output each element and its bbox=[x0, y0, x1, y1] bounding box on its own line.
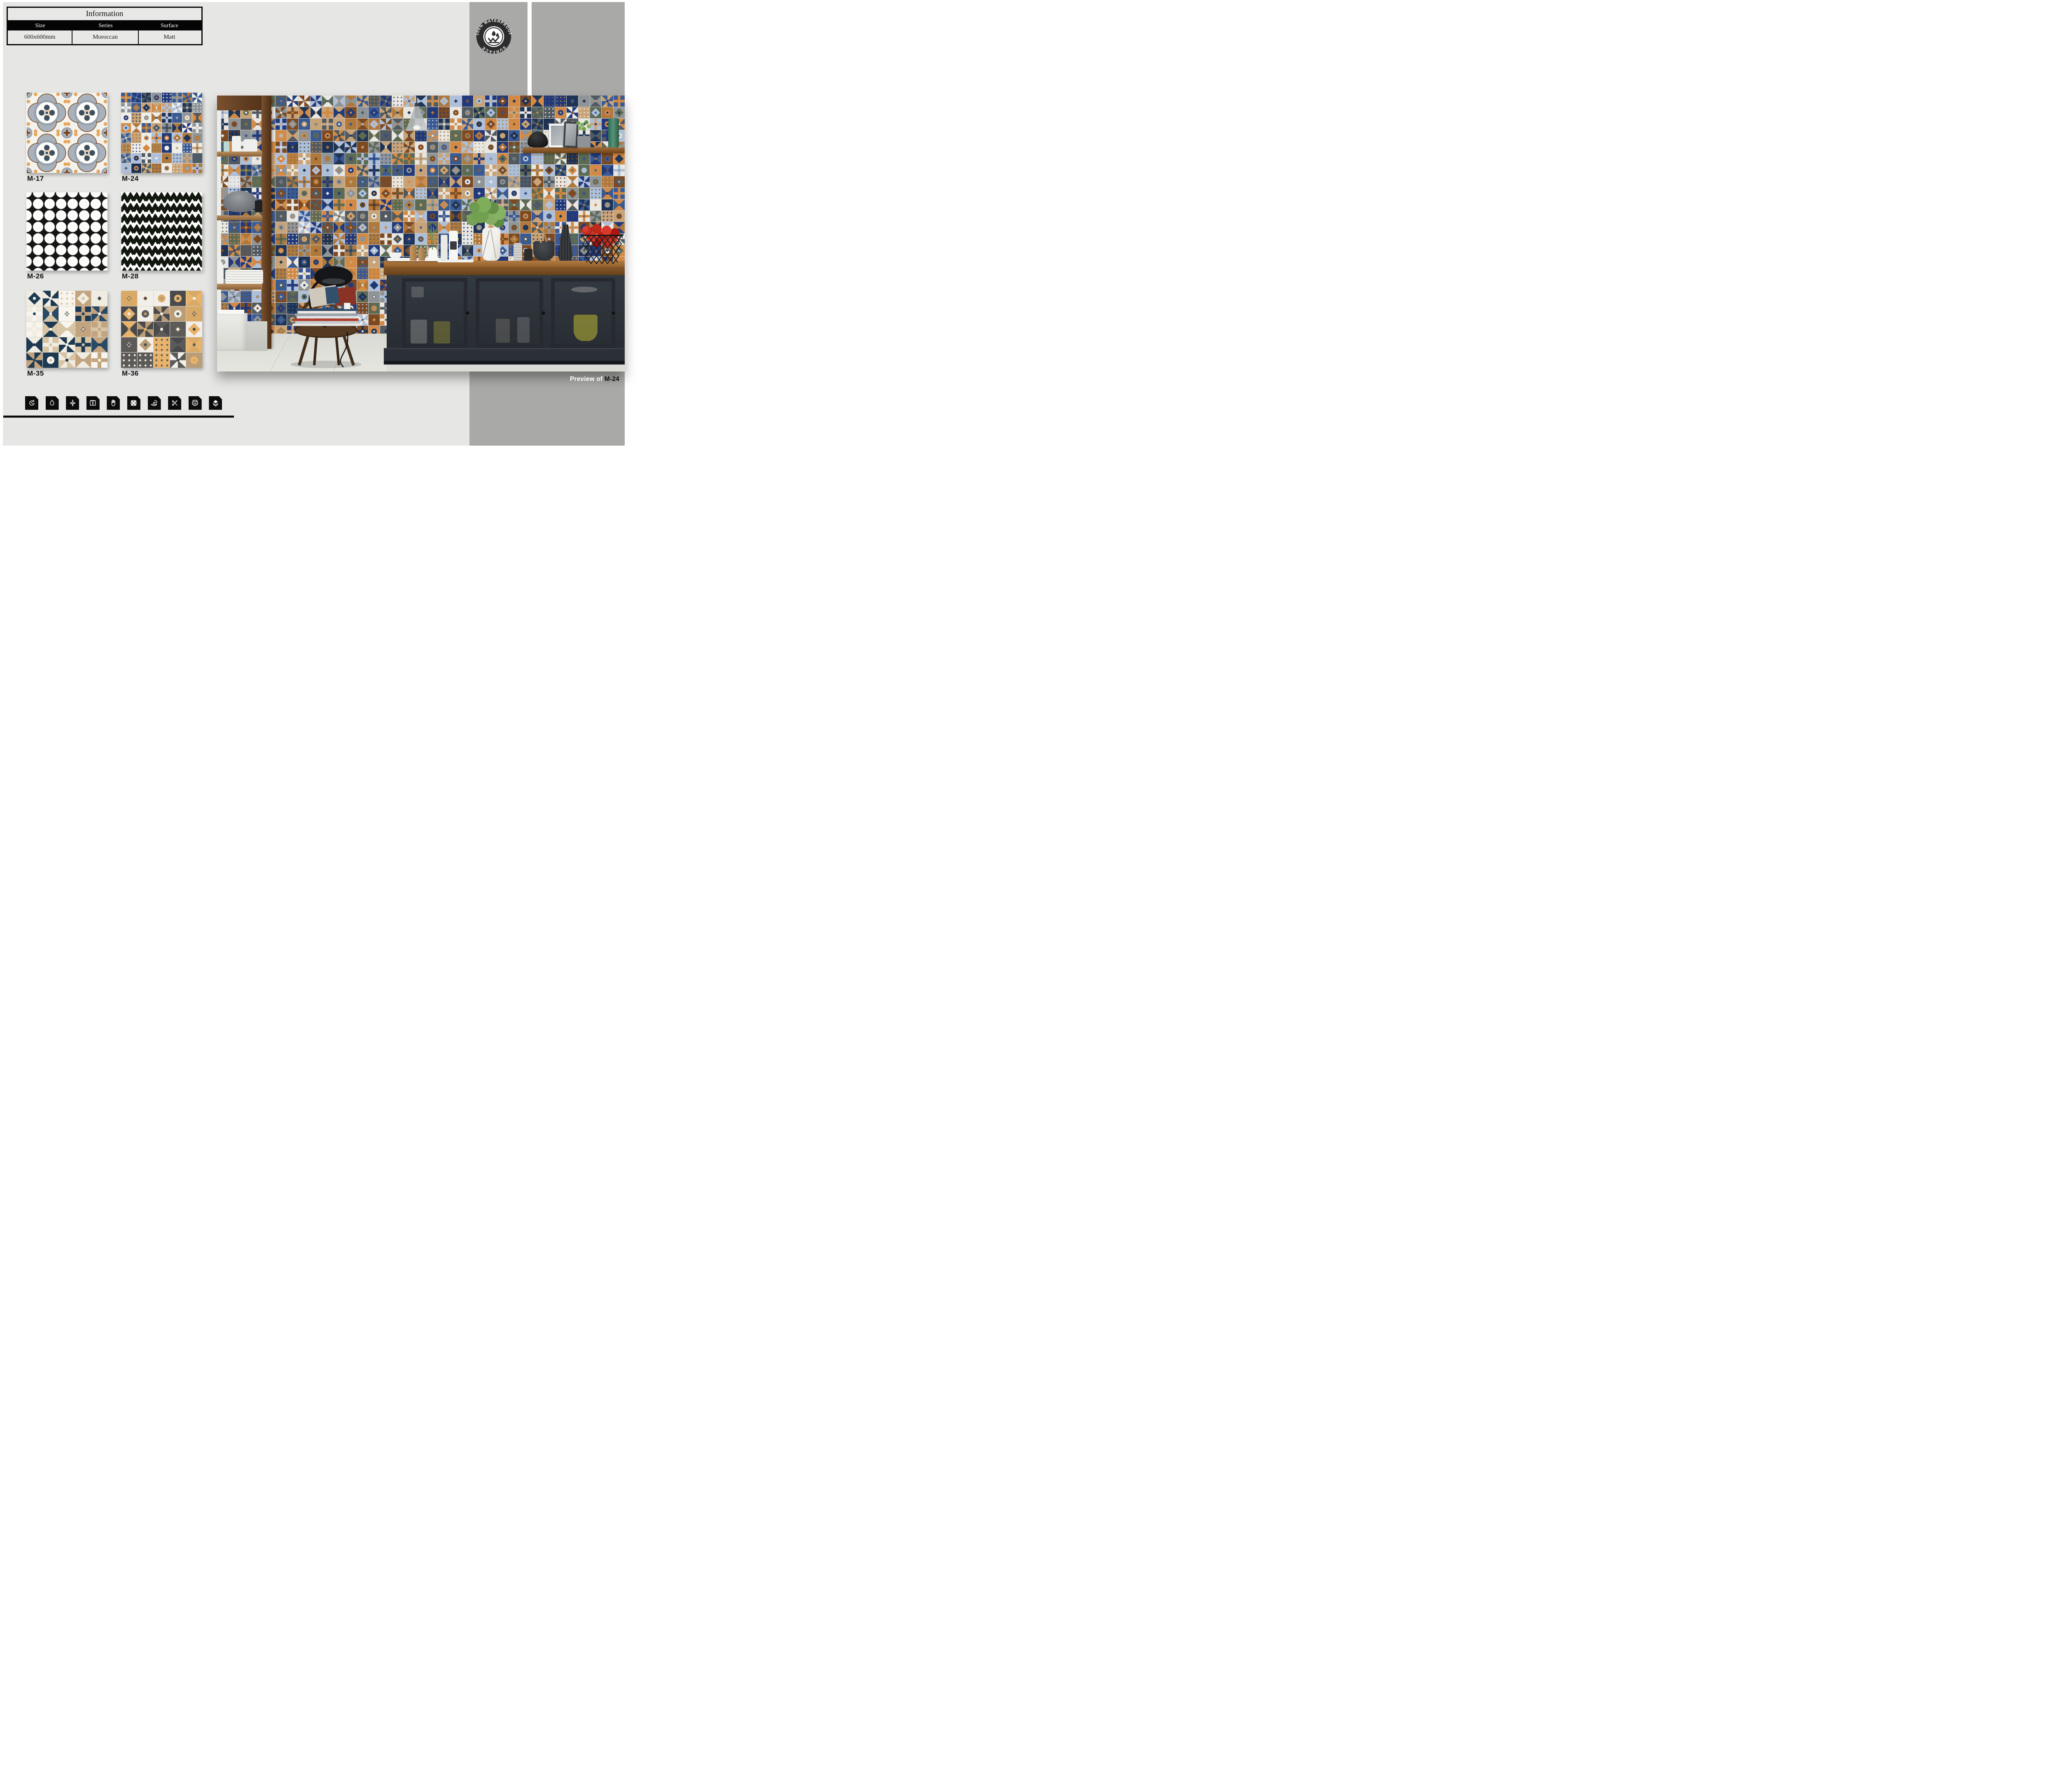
pattern-cell bbox=[170, 353, 186, 368]
pattern-cell bbox=[240, 176, 252, 187]
pattern-cell bbox=[142, 103, 152, 113]
pattern-cell bbox=[404, 199, 415, 210]
pattern-cell bbox=[334, 96, 345, 107]
pattern-cell bbox=[322, 107, 333, 118]
pattern-cell bbox=[138, 353, 154, 368]
pattern-cell bbox=[299, 165, 310, 176]
pattern-cell bbox=[474, 165, 485, 176]
pattern-cell bbox=[555, 211, 566, 222]
pattern-cell bbox=[427, 96, 438, 107]
pattern-cell bbox=[380, 96, 391, 107]
storage-box-small bbox=[247, 321, 267, 351]
pattern-cell bbox=[310, 153, 322, 164]
pattern-cell bbox=[287, 165, 298, 176]
pattern-cell bbox=[392, 176, 403, 187]
pattern-cell bbox=[474, 107, 485, 118]
pattern-cell bbox=[462, 211, 473, 222]
pattern-cell bbox=[369, 291, 380, 302]
pattern-cell bbox=[485, 142, 496, 153]
pattern-cell bbox=[162, 153, 172, 163]
pattern-cell bbox=[287, 107, 298, 118]
pattern-cell bbox=[334, 176, 345, 187]
tile-grid-icon bbox=[127, 396, 140, 410]
pattern-cell bbox=[485, 153, 496, 164]
pattern-cell bbox=[614, 222, 625, 233]
pattern-cell bbox=[485, 96, 496, 107]
pattern-cell bbox=[152, 164, 161, 173]
pattern-cell bbox=[322, 165, 333, 176]
pattern-cell bbox=[579, 96, 590, 107]
pattern-cell bbox=[380, 234, 391, 245]
apples bbox=[582, 226, 592, 236]
pattern-cell bbox=[182, 164, 192, 173]
preview-code: M-24 bbox=[605, 376, 619, 383]
pattern-cell bbox=[275, 165, 287, 176]
pattern-cell bbox=[614, 153, 625, 164]
pattern-cell bbox=[152, 103, 161, 113]
pattern-cell bbox=[162, 113, 172, 123]
pattern-cell bbox=[334, 211, 345, 222]
pattern-cell bbox=[427, 142, 438, 153]
pattern-cell bbox=[392, 119, 403, 130]
pattern-cell bbox=[579, 176, 590, 187]
pattern-cell bbox=[287, 188, 298, 199]
pattern-cell bbox=[450, 211, 461, 222]
series-value: Moroccan bbox=[72, 30, 139, 44]
pattern-cell bbox=[544, 211, 555, 222]
m35-patchwork bbox=[26, 291, 107, 368]
green-glass-vase bbox=[608, 118, 619, 147]
pattern-cell bbox=[345, 119, 356, 130]
ivy-plant bbox=[469, 202, 480, 213]
pattern-cell bbox=[380, 119, 391, 130]
pattern-cell bbox=[357, 176, 368, 187]
pattern-cell bbox=[121, 123, 131, 133]
pattern-cell bbox=[392, 142, 403, 153]
pattern-cell bbox=[131, 103, 141, 113]
pattern-cell bbox=[520, 188, 531, 199]
pattern-cell bbox=[520, 96, 531, 107]
pattern-cell bbox=[172, 123, 182, 133]
napkin-stack bbox=[218, 310, 244, 314]
pattern-cell bbox=[439, 165, 450, 176]
pattern-cell bbox=[59, 306, 75, 322]
pattern-cell bbox=[240, 257, 252, 268]
pattern-cell bbox=[509, 153, 520, 164]
pattern-cell bbox=[131, 123, 141, 133]
pattern-cell bbox=[26, 337, 42, 353]
pattern-cell bbox=[186, 291, 202, 306]
bud-vase bbox=[428, 247, 437, 261]
pattern-cell bbox=[91, 353, 107, 368]
pattern-cell bbox=[357, 153, 368, 164]
pattern-cell bbox=[322, 199, 333, 210]
pattern-cell bbox=[182, 103, 192, 113]
pattern-cell bbox=[485, 119, 496, 130]
hand-icon bbox=[107, 396, 120, 410]
pattern-cell bbox=[532, 176, 543, 187]
pattern-cell bbox=[310, 142, 322, 153]
pattern-cell bbox=[182, 113, 192, 123]
pattern-cell bbox=[579, 119, 590, 130]
white-vase bbox=[217, 262, 224, 284]
feature-icons-row bbox=[25, 396, 222, 410]
marble-vase bbox=[482, 228, 500, 261]
pattern-cell bbox=[322, 142, 333, 153]
pattern-cell bbox=[369, 303, 380, 314]
pattern-cell bbox=[555, 165, 566, 176]
pattern-cell bbox=[474, 142, 485, 153]
color-fastness-icon bbox=[25, 396, 38, 410]
pattern-cell bbox=[380, 107, 391, 118]
pattern-cell bbox=[152, 93, 161, 103]
pattern-cell bbox=[520, 119, 531, 130]
pattern-cell bbox=[439, 153, 450, 164]
pattern-cell bbox=[497, 211, 508, 222]
pattern-cell bbox=[369, 165, 380, 176]
pattern-cell bbox=[614, 199, 625, 210]
pattern-cell bbox=[497, 107, 508, 118]
pattern-cell bbox=[162, 143, 172, 153]
pattern-cell bbox=[532, 188, 543, 199]
panel-divider-line bbox=[528, 2, 532, 96]
pattern-cell bbox=[162, 133, 172, 143]
pattern-cell bbox=[462, 96, 473, 107]
pattern-cell bbox=[275, 153, 287, 164]
pattern-cell bbox=[192, 103, 202, 113]
pattern-cell bbox=[602, 176, 613, 187]
pattern-cell bbox=[152, 153, 161, 163]
plant-leaves bbox=[576, 121, 580, 125]
label-m35: M-35 bbox=[27, 369, 44, 378]
label-m26: M-26 bbox=[27, 272, 44, 280]
pattern-cell bbox=[544, 188, 555, 199]
pattern-cell bbox=[59, 291, 75, 306]
pattern-cell bbox=[369, 257, 380, 268]
pattern-cell bbox=[138, 306, 154, 322]
pattern-cell bbox=[590, 188, 601, 199]
pattern-cell bbox=[170, 337, 186, 353]
pattern-cell bbox=[427, 222, 438, 233]
pattern-cell bbox=[345, 96, 356, 107]
pattern-cell bbox=[334, 153, 345, 164]
pattern-cell bbox=[509, 188, 520, 199]
wall-shelf bbox=[523, 147, 625, 153]
pattern-cell bbox=[334, 188, 345, 199]
pattern-cell bbox=[474, 130, 485, 141]
pattern-cell bbox=[602, 222, 613, 233]
pattern-cell bbox=[462, 130, 473, 141]
pattern-cell bbox=[520, 107, 531, 118]
pattern-cell bbox=[497, 176, 508, 187]
room-preview-photo bbox=[217, 96, 625, 371]
circle-petal-pattern bbox=[26, 192, 107, 271]
pattern-cell bbox=[369, 96, 380, 107]
pattern-cell bbox=[392, 188, 403, 199]
pattern-cell bbox=[322, 130, 333, 141]
pattern-cell bbox=[172, 133, 182, 143]
pattern-cell bbox=[555, 96, 566, 107]
pattern-cell bbox=[415, 130, 426, 141]
pattern-cell bbox=[462, 153, 473, 164]
pattern-cell bbox=[462, 245, 473, 256]
pattern-cell bbox=[497, 96, 508, 107]
label-m36: M-36 bbox=[122, 369, 139, 378]
pattern-cell bbox=[287, 199, 298, 210]
pattern-cell bbox=[229, 222, 240, 233]
pattern-cell bbox=[310, 199, 322, 210]
pattern-cell bbox=[240, 222, 252, 233]
pattern-cell bbox=[450, 107, 461, 118]
white-bottle bbox=[449, 231, 458, 259]
pattern-cell bbox=[299, 119, 310, 130]
cabinet-door-1 bbox=[402, 278, 467, 348]
pattern-cell bbox=[310, 130, 322, 141]
pattern-cell bbox=[75, 322, 91, 337]
pattern-cell bbox=[75, 337, 91, 353]
pattern-cell bbox=[450, 188, 461, 199]
pattern-cell bbox=[43, 337, 59, 353]
pattern-cell bbox=[192, 93, 202, 103]
pattern-cell bbox=[590, 119, 601, 130]
pattern-cell bbox=[192, 143, 202, 153]
pattern-cell bbox=[26, 306, 42, 322]
pattern-cell bbox=[142, 93, 152, 103]
pattern-cell bbox=[287, 153, 298, 164]
pattern-cell bbox=[439, 199, 450, 210]
pattern-cell bbox=[380, 176, 391, 187]
pattern-cell bbox=[567, 153, 578, 164]
pattern-cell bbox=[520, 222, 531, 233]
pattern-cell bbox=[544, 222, 555, 233]
pattern-cell bbox=[602, 107, 613, 118]
pattern-cell bbox=[334, 142, 345, 153]
pattern-cell bbox=[450, 142, 461, 153]
pattern-cell bbox=[509, 130, 520, 141]
pattern-cell bbox=[380, 165, 391, 176]
pattern-cell bbox=[427, 165, 438, 176]
pattern-cell bbox=[131, 133, 141, 143]
pattern-cell bbox=[404, 234, 415, 245]
mortar-bowl bbox=[533, 241, 555, 261]
pattern-cell bbox=[392, 153, 403, 164]
pattern-cell bbox=[345, 199, 356, 210]
pepper-mill-2 bbox=[418, 248, 425, 261]
pattern-cell bbox=[186, 337, 202, 353]
pattern-cell bbox=[497, 142, 508, 153]
layers-icon bbox=[209, 396, 222, 410]
pattern-cell bbox=[415, 142, 426, 153]
pattern-cell bbox=[229, 257, 240, 268]
pattern-cell bbox=[427, 107, 438, 118]
pattern-cell bbox=[415, 234, 426, 245]
pepper-mill-1 bbox=[410, 245, 417, 261]
pattern-cell bbox=[287, 211, 298, 222]
eco-leaf-icon bbox=[148, 396, 161, 410]
pattern-cell bbox=[121, 337, 137, 353]
pattern-cell bbox=[275, 119, 287, 130]
pattern-cell bbox=[532, 119, 543, 130]
pattern-cell bbox=[322, 176, 333, 187]
pattern-cell bbox=[380, 188, 391, 199]
pattern-cell bbox=[43, 322, 59, 337]
pattern-cell bbox=[334, 130, 345, 141]
door-knob-2 bbox=[542, 311, 545, 315]
quatrefoil-pattern bbox=[26, 93, 107, 173]
m24-patchwork bbox=[121, 93, 202, 173]
pattern-cell bbox=[357, 211, 368, 222]
tile-swatch-m35 bbox=[26, 291, 107, 368]
pattern-cell bbox=[404, 153, 415, 164]
pattern-cell bbox=[229, 176, 240, 187]
pattern-cell bbox=[415, 165, 426, 176]
printer-icon bbox=[189, 396, 202, 410]
pattern-cell bbox=[121, 143, 131, 153]
pattern-cell bbox=[186, 306, 202, 322]
pattern-cell bbox=[121, 113, 131, 123]
pattern-cell bbox=[369, 199, 380, 210]
pattern-cell bbox=[404, 165, 415, 176]
pattern-cell bbox=[43, 306, 59, 322]
pattern-cell bbox=[590, 96, 601, 107]
pattern-cell bbox=[427, 176, 438, 187]
pattern-cell bbox=[614, 107, 625, 118]
information-value-row: 600x600mm Moroccan Matt bbox=[8, 30, 201, 44]
pattern-cell bbox=[192, 164, 202, 173]
pattern-cell bbox=[485, 107, 496, 118]
pattern-cell bbox=[614, 165, 625, 176]
countertop-edge bbox=[384, 266, 625, 275]
waterproof-badge-icon: 100% WATERPROOF SURFACE bbox=[475, 18, 512, 55]
pattern-cell bbox=[462, 119, 473, 130]
pattern-cell bbox=[520, 199, 531, 210]
pattern-cell bbox=[392, 130, 403, 141]
pattern-cell bbox=[310, 176, 322, 187]
plate-stack bbox=[225, 270, 263, 284]
pattern-cell bbox=[462, 222, 473, 233]
pattern-cell bbox=[299, 130, 310, 141]
pattern-cell bbox=[614, 188, 625, 199]
tile-swatch-m24 bbox=[121, 93, 202, 173]
pattern-cell bbox=[299, 142, 310, 153]
pattern-cell bbox=[404, 188, 415, 199]
pattern-cell bbox=[310, 211, 322, 222]
pattern-cell bbox=[182, 133, 192, 143]
label-m17: M-17 bbox=[27, 175, 44, 183]
pattern-cell bbox=[555, 153, 566, 164]
pattern-cell bbox=[380, 222, 391, 233]
pattern-cell bbox=[121, 353, 137, 368]
pattern-cell bbox=[142, 123, 152, 133]
pattern-cell bbox=[131, 143, 141, 153]
pattern-cell bbox=[345, 153, 356, 164]
pattern-cell bbox=[544, 96, 555, 107]
pattern-cell bbox=[555, 199, 566, 210]
pattern-cell bbox=[509, 119, 520, 130]
pattern-cell bbox=[380, 199, 391, 210]
pattern-cell bbox=[154, 353, 170, 368]
plant-pot bbox=[577, 136, 591, 147]
pattern-cell bbox=[532, 153, 543, 164]
pattern-cell bbox=[131, 93, 141, 103]
col-series-header: Series bbox=[72, 21, 139, 30]
pattern-cell bbox=[544, 153, 555, 164]
pattern-cell bbox=[182, 123, 192, 133]
pattern-cell bbox=[345, 142, 356, 153]
preview-prefix: Preview of bbox=[570, 376, 605, 383]
pattern-cell bbox=[450, 199, 461, 210]
pattern-cell bbox=[182, 143, 192, 153]
pattern-cell bbox=[287, 176, 298, 187]
pattern-cell bbox=[579, 107, 590, 118]
pattern-cell bbox=[369, 268, 380, 279]
pattern-cell bbox=[555, 188, 566, 199]
pattern-cell bbox=[334, 165, 345, 176]
pattern-cell bbox=[369, 153, 380, 164]
pattern-cell bbox=[590, 222, 601, 233]
pattern-cell bbox=[485, 211, 496, 222]
pattern-cell bbox=[474, 153, 485, 164]
pattern-cell bbox=[555, 107, 566, 118]
pattern-cell bbox=[415, 211, 426, 222]
pattern-cell bbox=[91, 337, 107, 353]
pattern-cell bbox=[427, 130, 438, 141]
pattern-cell bbox=[404, 130, 415, 141]
pattern-cell bbox=[170, 322, 186, 337]
pattern-cell bbox=[170, 306, 186, 322]
pattern-cell bbox=[172, 113, 182, 123]
pattern-cell bbox=[567, 176, 578, 187]
pattern-cell bbox=[439, 119, 450, 130]
m36-patchwork bbox=[121, 291, 202, 368]
pattern-cell bbox=[131, 153, 141, 163]
pattern-cell bbox=[509, 142, 520, 153]
picture-frame-dark bbox=[563, 121, 578, 148]
pattern-cell bbox=[485, 199, 496, 210]
pattern-cell bbox=[299, 211, 310, 222]
pattern-cell bbox=[229, 165, 240, 176]
label-m24: M-24 bbox=[122, 175, 139, 183]
pattern-cell bbox=[75, 291, 91, 306]
pattern-cell bbox=[357, 188, 368, 199]
wall-outlet bbox=[344, 303, 350, 309]
pattern-cell bbox=[392, 211, 403, 222]
wire-basket bbox=[581, 235, 623, 264]
information-table: Information Size Series Surface 600x600m… bbox=[7, 7, 203, 45]
pattern-cell bbox=[121, 93, 131, 103]
pattern-cell bbox=[275, 211, 287, 222]
pattern-cell bbox=[369, 222, 380, 233]
pattern-cell bbox=[450, 96, 461, 107]
pattern-cell bbox=[334, 107, 345, 118]
pattern-cell bbox=[26, 291, 42, 306]
black-cup-counter bbox=[524, 249, 532, 261]
pattern-cell bbox=[462, 188, 473, 199]
wall-edge bbox=[217, 96, 221, 334]
pattern-cell bbox=[555, 176, 566, 187]
pattern-cell bbox=[334, 119, 345, 130]
pattern-cell bbox=[345, 188, 356, 199]
pattern-cell bbox=[369, 234, 380, 245]
pattern-cell bbox=[520, 165, 531, 176]
pattern-cell bbox=[192, 133, 202, 143]
pattern-cell bbox=[450, 153, 461, 164]
pattern-cell bbox=[369, 211, 380, 222]
pattern-cell bbox=[520, 176, 531, 187]
pattern-cell bbox=[497, 188, 508, 199]
pattern-cell bbox=[75, 353, 91, 368]
pattern-cell bbox=[415, 176, 426, 187]
